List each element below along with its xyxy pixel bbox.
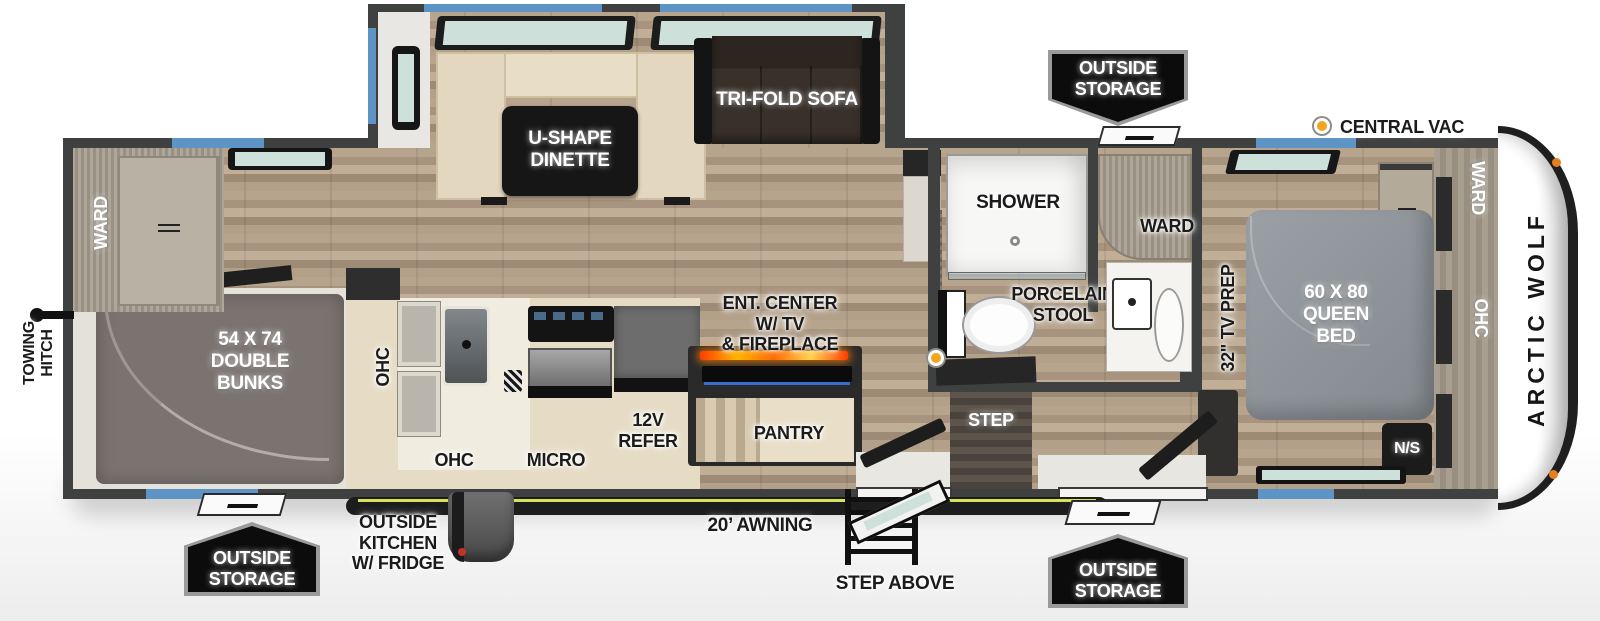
kitchen-corner-block [346,268,400,300]
bunks-label: 54 X 74 DOUBLE BUNKS [180,328,320,396]
towing-hitch-label: TOWING HITCH [17,298,61,408]
window-accent-bedroom-bottom [1258,489,1334,499]
shower-glass-door [948,272,1086,280]
slideout-left-window-glass [398,54,414,122]
shower-pan [946,154,1088,276]
dinette-left-foot [481,197,507,205]
tv-bar [702,366,852,382]
bedroom-entry-tile [1038,455,1206,489]
refer-label: 12V REFER [600,408,696,454]
window-accent-bedroom-top [1256,138,1356,148]
brand-label: ARCTIC WOLF [1523,219,1549,419]
microwave [528,348,612,388]
bunkroom-window-glass [235,152,325,166]
bedroom-window-sill-glass [1262,470,1400,480]
baggage-door-rear [197,493,288,516]
slideout-blue-top-a [424,4,602,12]
oven-mitt-icon [504,370,522,392]
dinette-left-bench [436,52,506,200]
kitchen-sink-drain [462,340,471,349]
bath-ward-label: WARD [1107,215,1227,237]
top-wall-front [896,138,1502,148]
vanity-oval [1154,288,1184,362]
sofa-label: TRI-FOLD SOFA [710,88,864,112]
shower-label: SHOWER [958,192,1078,214]
rear-ward-label: WARD [90,168,112,278]
central-vac-legend-dot-icon [1314,118,1330,134]
microwave-front [528,386,612,398]
kitchen-ohc-cabinet-1 [398,302,440,366]
outside-storage-rear-label: OUTSIDE STORAGE [184,548,320,590]
cooktop-burners [534,312,608,320]
baggage-door-top [1097,126,1181,146]
kitchen-ohc-cabinet-2 [398,372,440,436]
outside-storage-front-label: OUTSIDE STORAGE [1048,560,1188,602]
baggage-door-front [1064,500,1161,525]
awning-label: 20’ AWNING [680,514,840,538]
front-wardrobe-inset-1 [1436,177,1452,251]
bedroom-skylight-glass [1235,154,1331,170]
step-above-label: STEP ABOVE [800,572,990,596]
dinette-label: U-SHAPE DINETTE [500,126,640,174]
outside-kitchen-label: OUTSIDE KITCHEN W/ FRIDGE [328,508,468,578]
toilet-tank-side [938,290,947,358]
rear-ward-handles [158,224,180,226]
dinette-right-foot [664,197,690,205]
bath-ward-cabinet [1098,154,1192,260]
clearance-light-bottom-icon [1549,470,1558,479]
ent-center-label: ENT. CENTER W/ TV & FIREPLACE [690,292,870,356]
kitchen-ohc-vertical-label: OHC [372,312,394,422]
shower-drain [1010,236,1020,246]
step-band [950,392,1032,489]
slideout-blue-left [368,28,376,124]
step-label: STEP [946,408,1036,432]
front-wardrobe-inset-2 [1436,290,1452,364]
dinette-window-glass-1 [443,21,628,45]
window-accent-rear-top [172,138,264,148]
kitchen-ohc-label: OHC [404,449,504,471]
floorplan-canvas: 54 X 74 DOUBLE BUNKS WARD U-SHAPE DINETT… [0,0,1600,621]
central-vac-dot-icon [928,350,944,366]
tv-blue-line [704,382,850,385]
rear-ward-doors [118,156,220,306]
night-stand-label: N/S [1382,438,1432,460]
front-wardrobe-inset-3 [1436,394,1452,468]
vanity-faucet [1128,298,1136,306]
step-platform-top [936,356,1037,385]
front-ohc-label: OHC [1470,268,1492,368]
central-vac-legend-label: CENTRAL VAC [1340,116,1480,138]
front-ward-label: WARD [1467,138,1489,238]
micro-label: MICRO [506,449,606,471]
clearance-light-top-icon [1552,158,1561,167]
queen-bed-label: 60 X 80 QUEEN BED [1266,282,1406,348]
pantry-label: PANTRY [714,422,864,444]
slideout-blue-top-b [660,4,852,12]
tv-prep-label: 32" TV PREP [1217,258,1239,378]
outside-storage-top-label: OUTSIDE STORAGE [1048,58,1188,100]
